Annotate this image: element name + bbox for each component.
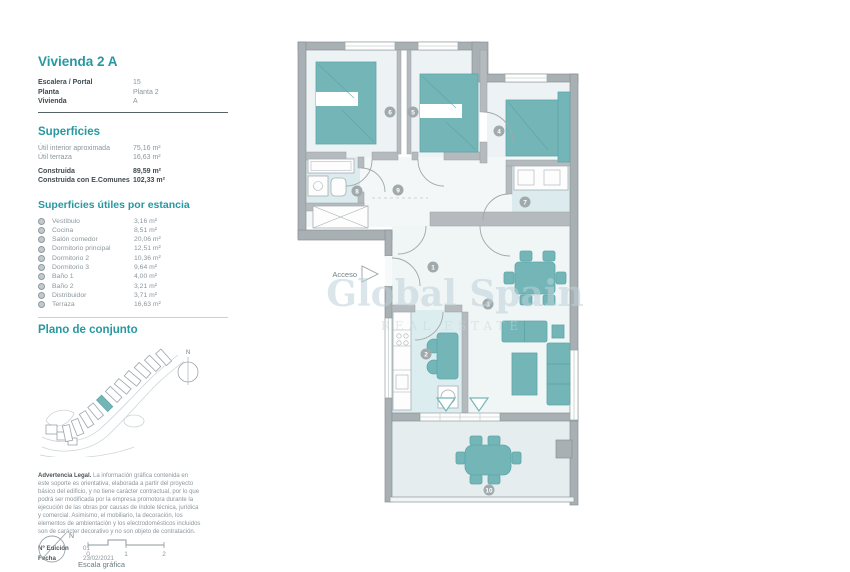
- room-marker: 8: [352, 186, 363, 197]
- svg-text:2: 2: [424, 352, 428, 359]
- svg-text:REAL ESTATE: REAL ESTATE: [381, 319, 523, 333]
- floorplan-sheet: Vivienda 2 A Escalera / Portal 15 Planta…: [0, 0, 850, 572]
- room-marker: 7: [520, 197, 531, 208]
- terrace-railing: [390, 497, 574, 502]
- room-marker: 9: [393, 185, 404, 196]
- room-marker: 2: [421, 349, 432, 360]
- room-marker: 6: [385, 107, 396, 118]
- svg-text:4: 4: [497, 129, 501, 136]
- room-marker: 1: [428, 262, 439, 273]
- svg-text:Global Spain: Global Spain: [326, 273, 583, 315]
- svg-text:6: 6: [388, 110, 392, 117]
- svg-text:1: 1: [431, 265, 435, 272]
- floor-plan-drawing: Acceso 1 2 3 4 5 6 7 8 9 10 Global Spain…: [0, 0, 850, 572]
- room-marker: 4: [494, 126, 505, 137]
- svg-text:7: 7: [523, 200, 527, 207]
- room-marker: 5: [408, 107, 419, 118]
- svg-text:9: 9: [396, 188, 400, 195]
- svg-text:5: 5: [411, 110, 415, 117]
- svg-text:8: 8: [355, 189, 359, 196]
- svg-text:10: 10: [485, 488, 493, 495]
- room-marker: 10: [484, 485, 495, 496]
